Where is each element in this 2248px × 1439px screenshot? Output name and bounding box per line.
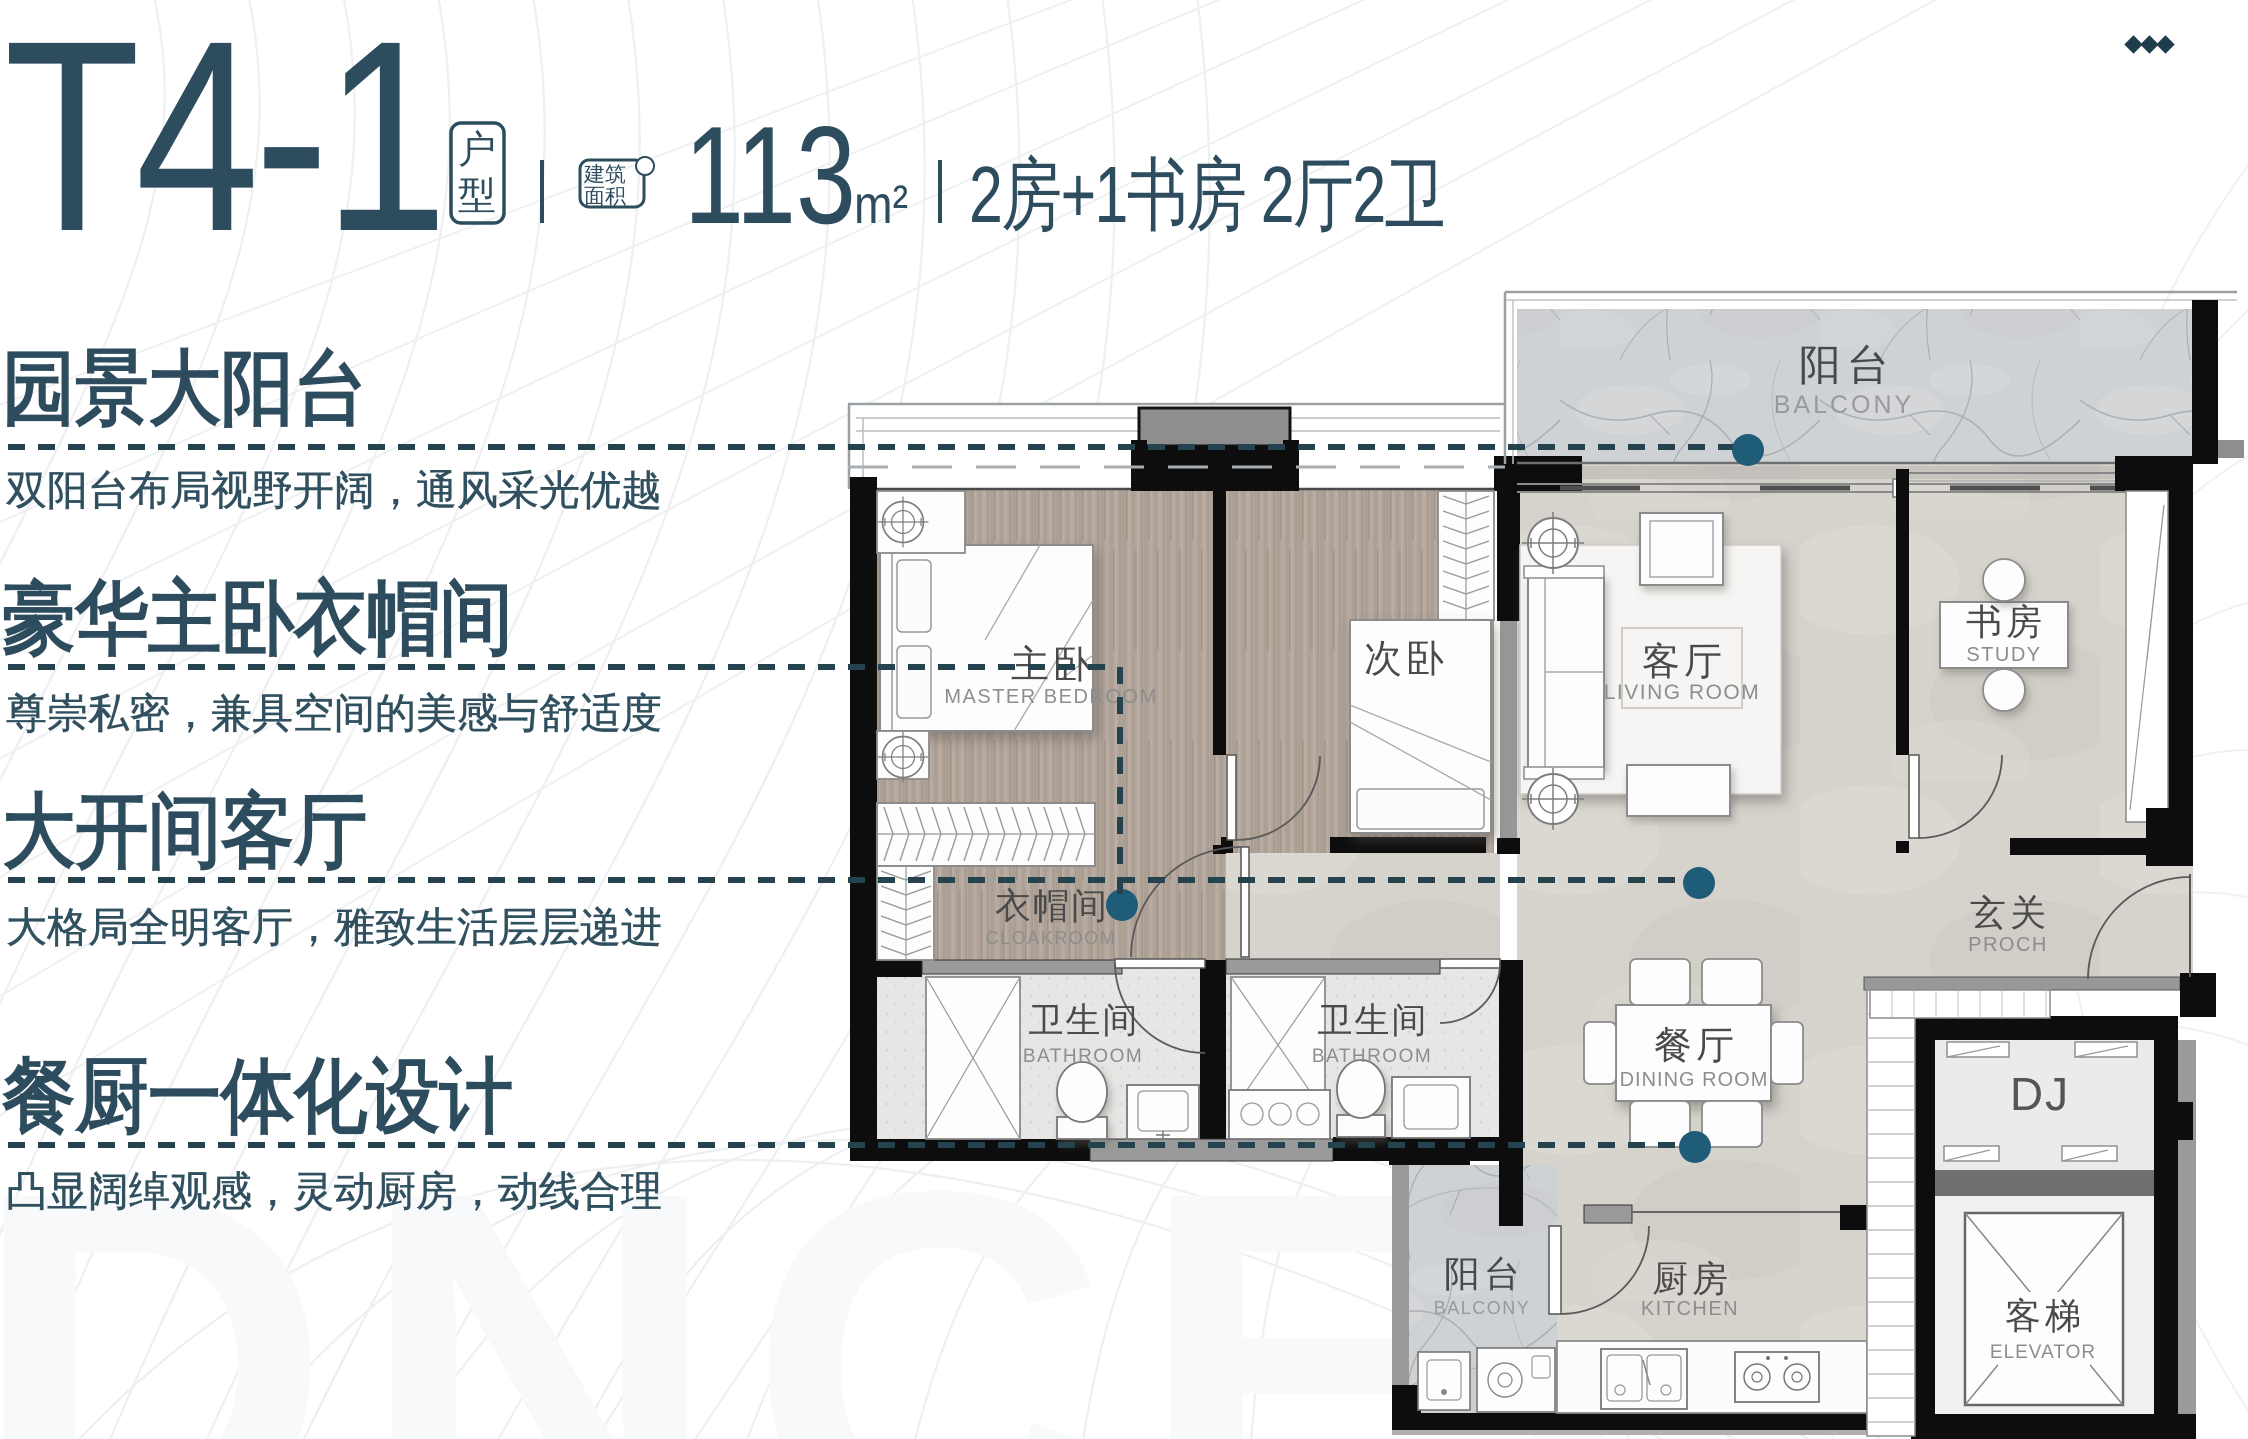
svg-text:BALCONY: BALCONY: [1774, 391, 1914, 419]
svg-text:DINING ROOM: DINING ROOM: [1620, 1069, 1769, 1091]
svg-text:CLOAKROOM: CLOAKROOM: [986, 928, 1117, 948]
svg-text:2: 2: [969, 151, 1001, 240]
svg-text:STUDY: STUDY: [1966, 644, 2041, 666]
svg-text:m²: m²: [854, 175, 908, 235]
svg-text:ELEVATOR: ELEVATOR: [1990, 1342, 2096, 1363]
svg-text:BALCONY: BALCONY: [1434, 1298, 1531, 1318]
svg-text:BATHROOM: BATHROOM: [1312, 1046, 1432, 1067]
svg-text:MASTER BEDROOM: MASTER BEDROOM: [944, 686, 1157, 708]
svg-text:PROCH: PROCH: [1968, 934, 2048, 956]
svg-text:DJ: DJ: [2010, 1068, 2070, 1120]
svg-text:BATHROOM: BATHROOM: [1023, 1046, 1143, 1067]
svg-text:2: 2: [1352, 151, 1384, 240]
svg-text:T4-1: T4-1: [4, 0, 443, 288]
svg-text:+1: +1: [1061, 151, 1127, 240]
svg-text:LIVING ROOM: LIVING ROOM: [1604, 681, 1761, 704]
svg-text:KITCHEN: KITCHEN: [1641, 1298, 1739, 1320]
svg-text:2: 2: [1261, 151, 1293, 240]
svg-text:113: 113: [684, 98, 856, 253]
